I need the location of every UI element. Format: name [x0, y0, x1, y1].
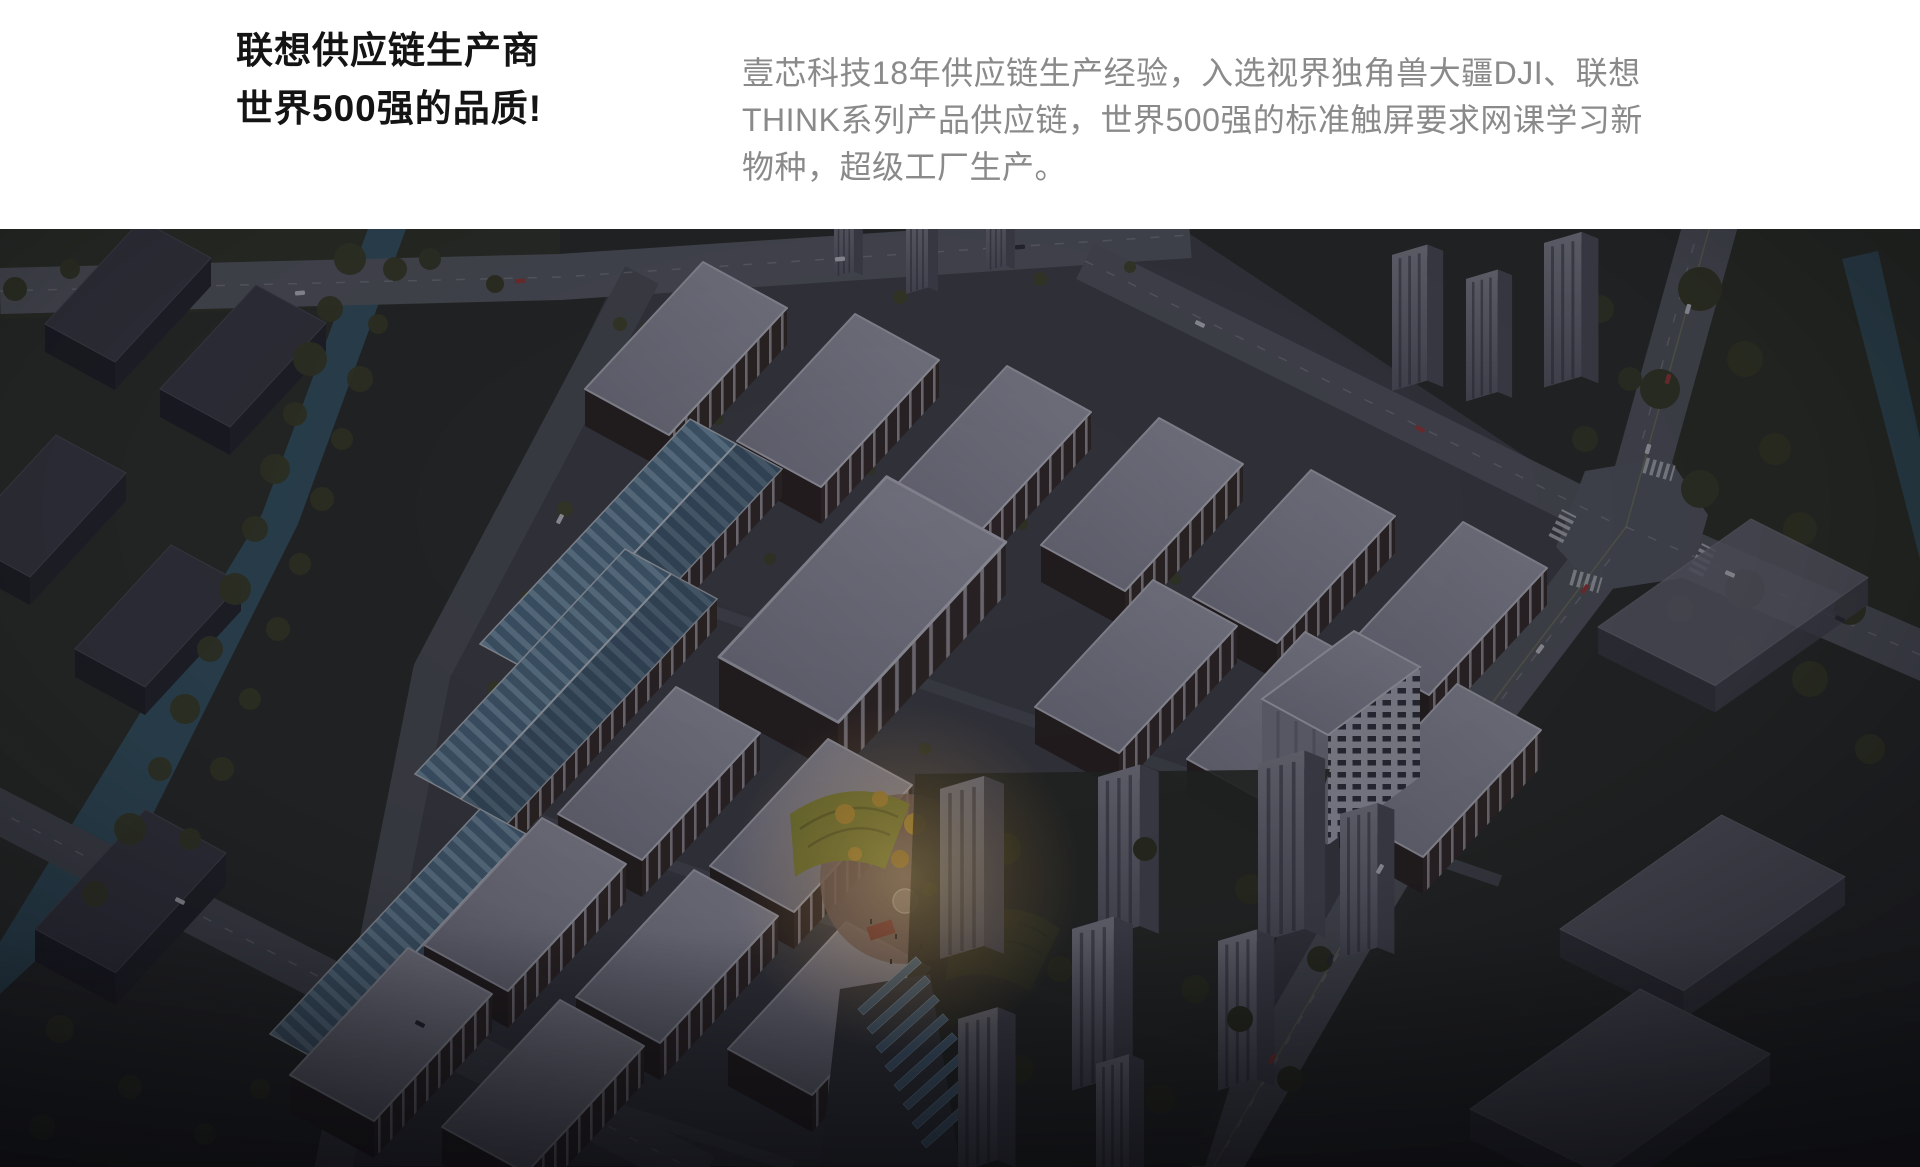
dusk-overlay — [0, 229, 1920, 1167]
page-title: 联想供应链生产商 世界500强的品质! — [236, 22, 542, 138]
page-title-line-1: 联想供应链生产商 — [236, 22, 542, 80]
page-description: 壹芯科技18年供应链生产经验，入选视界独角兽大疆DJI、联想 THINK系列产品… — [742, 50, 1643, 191]
page: 联想供应链生产商 世界500强的品质! 壹芯科技18年供应链生产经验，入选视界独… — [0, 0, 1920, 1167]
hero-header: 联想供应链生产商 世界500强的品质! 壹芯科技18年供应链生产经验，入选视界独… — [0, 0, 1920, 229]
page-description-line-2: THINK系列产品供应链，世界500强的标准触屏要求网课学习新 — [742, 97, 1643, 144]
page-title-line-2: 世界500强的品质! — [236, 80, 542, 138]
plaza-glow — [730, 702, 1080, 1052]
aerial-render-image — [0, 229, 1920, 1167]
page-description-line-3: 物种，超级工厂生产。 — [742, 144, 1643, 191]
hero-image — [0, 229, 1920, 1167]
page-description-line-1: 壹芯科技18年供应链生产经验，入选视界独角兽大疆DJI、联想 — [742, 50, 1643, 97]
